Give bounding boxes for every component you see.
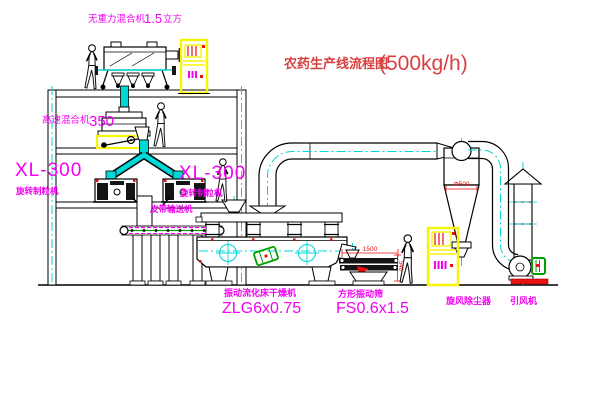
discharge-chute — [135, 127, 149, 140]
label-gravity-mixer-name: 无重力混合机 — [88, 13, 146, 25]
dim-screen-height: 540 — [397, 261, 403, 272]
outlet-elbow — [452, 142, 471, 161]
y-split-pipe — [110, 140, 178, 177]
label-screen-model: FS0.6x1.5 — [336, 300, 409, 317]
granulator-left — [93, 171, 139, 202]
control-cabinet-1 — [178, 40, 210, 94]
stack-cap — [505, 169, 541, 184]
label-dryer-name: 振动流化床干燥机 — [224, 287, 296, 298]
drawing-title: 农药生产线流程图 — [283, 56, 388, 71]
label-hs-mixer-name: 高速混合机 — [42, 114, 90, 126]
control-cabinet-2 — [428, 228, 458, 285]
label-screen-name: 方形振动筛 — [338, 288, 383, 299]
label-granulator-right-model: XL-300 — [179, 163, 246, 184]
label-belt-conveyor: 皮带输送机 — [149, 204, 193, 214]
dim-cyclone-inlet: Φ500 — [453, 181, 469, 188]
label-fan: 引风机 — [510, 295, 537, 306]
exhaust-duct — [250, 143, 454, 215]
label-cyclone: 旋风除尘器 — [445, 295, 492, 306]
label-hs-mixer-model: 350 — [89, 113, 114, 130]
label-granulator-right-name: 旋转制粒机 — [179, 188, 223, 198]
label-gravity-mixer-unit: 立方 — [163, 13, 182, 25]
label-granulator-left-model: XL-300 — [15, 160, 82, 181]
fan-base — [511, 279, 548, 284]
label-gravity-mixer-value: 1.5 — [144, 11, 162, 26]
person-4 — [400, 235, 413, 283]
induced-draft-fan — [509, 256, 548, 284]
label-granulator-left-name: 旋转制粒机 — [15, 186, 59, 196]
drawing-canvas: 无重力混合机 1.5 立方 高速混合机 350 XL-300 旋转制粒机 XL-… — [0, 0, 600, 403]
cad-flow-diagram: 无重力混合机 1.5 立方 高速混合机 350 XL-300 旋转制粒机 XL-… — [0, 0, 600, 403]
person-2 — [154, 103, 166, 147]
cyclone-separator — [444, 138, 479, 266]
drawing-title-capacity: (500kg/h) — [379, 52, 468, 75]
dim-screen-length: 1500 — [363, 246, 378, 253]
person-1 — [85, 45, 97, 89]
gravity-free-mixer — [94, 42, 180, 114]
label-dryer-model: ZLG6x0.75 — [222, 300, 301, 317]
